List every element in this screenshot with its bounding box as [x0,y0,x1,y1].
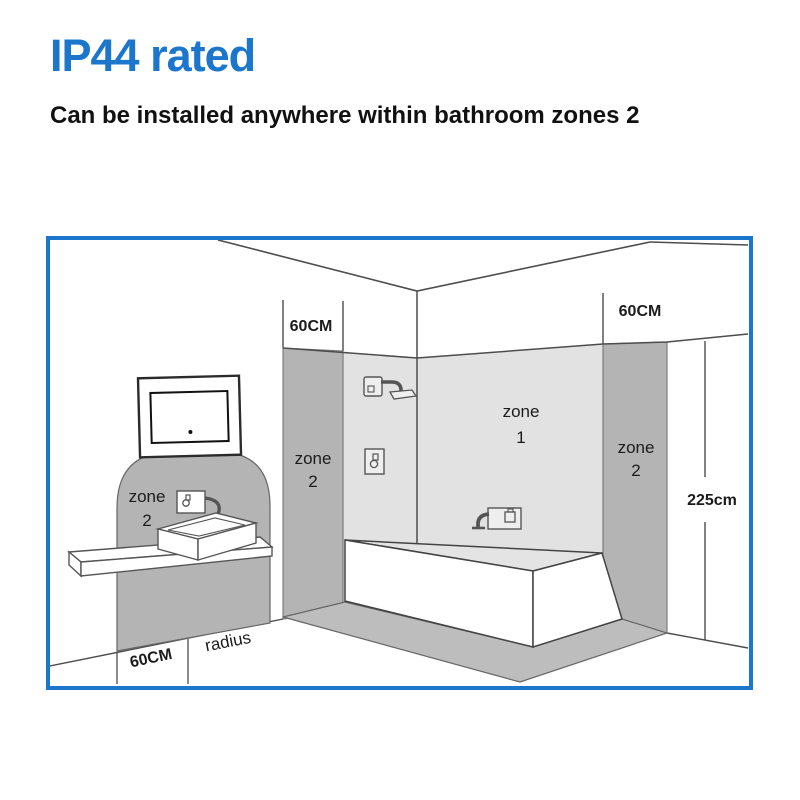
page-title: IP44 rated [50,30,255,82]
right-zone-width-label: 60CM [619,303,662,320]
right-wall-zone-label-word: zone [618,438,655,457]
led-mirror-icon [138,376,241,458]
ceiling-lines [218,240,748,291]
zone-height-label: 225cm [687,492,737,509]
shower-zone-width-label: 60CM [290,318,333,335]
bath-wall-zone-label-word: zone [503,402,540,421]
shower-valve-icon [365,449,384,474]
shower-side-zone-label-num: 2 [308,472,317,491]
shower-side-zone-label-word: zone [295,449,332,468]
page-subtitle: Can be installed anywhere within bathroo… [50,102,639,130]
sink-zone-label-word: zone [129,487,166,506]
bathroom-zones-illustration: 60CM 60CM 225cm 60CM radius zone 2 zone … [50,240,749,686]
bathroom-zones-diagram: 60CM 60CM 225cm 60CM radius zone 2 zone … [46,236,753,690]
page: IP44 rated Can be installed anywhere wit… [0,0,800,800]
right-wall-zone-label-num: 2 [631,461,640,480]
sink-zone-label-num: 2 [142,511,151,530]
floor-zone-width-label: 60CM [128,646,173,672]
bath-wall-zone-label-num: 1 [516,428,525,447]
